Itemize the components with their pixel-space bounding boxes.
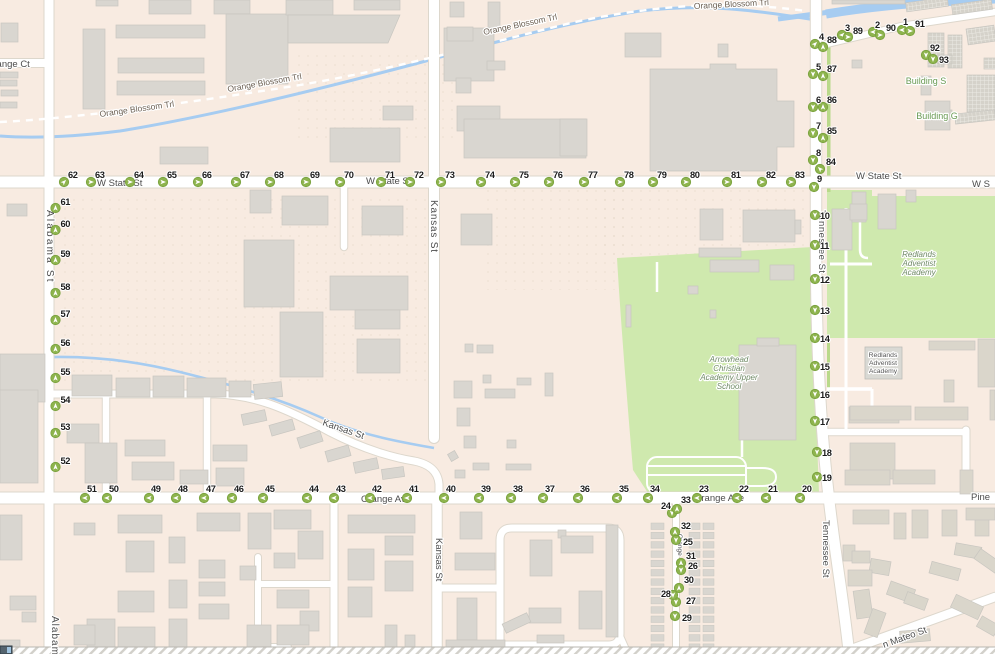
svg-text:W State St: W State St (856, 171, 902, 182)
svg-text:3: 3 (845, 23, 850, 33)
svg-text:47: 47 (206, 484, 216, 494)
svg-text:Building S: Building S (906, 76, 947, 86)
svg-text:17: 17 (820, 417, 830, 427)
svg-text:43: 43 (336, 484, 346, 494)
svg-text:7: 7 (816, 121, 821, 131)
svg-text:72: 72 (414, 170, 424, 180)
svg-text:37: 37 (545, 484, 555, 494)
svg-text:26: 26 (688, 561, 698, 571)
svg-text:83: 83 (795, 170, 805, 180)
svg-text:29: 29 (682, 613, 692, 623)
svg-text:Kansas St: Kansas St (428, 200, 439, 253)
svg-text:44: 44 (309, 484, 320, 494)
svg-text:56: 56 (61, 338, 71, 348)
svg-text:18: 18 (822, 448, 832, 458)
svg-text:87: 87 (827, 64, 837, 74)
svg-text:89: 89 (853, 26, 863, 36)
svg-text:Kansas St: Kansas St (433, 538, 444, 582)
svg-text:73: 73 (445, 170, 455, 180)
svg-text:76: 76 (553, 170, 563, 180)
svg-text:53: 53 (61, 422, 71, 432)
svg-text:85: 85 (827, 126, 837, 136)
svg-text:93: 93 (939, 55, 949, 65)
svg-text:77: 77 (588, 170, 598, 180)
svg-text:36: 36 (580, 484, 590, 494)
svg-text:41: 41 (409, 484, 419, 494)
svg-text:40: 40 (446, 484, 456, 494)
svg-text:22: 22 (739, 484, 749, 494)
svg-text:Orange Ct: Orange Ct (0, 59, 30, 70)
svg-text:62: 62 (68, 170, 78, 180)
svg-text:81: 81 (731, 170, 741, 180)
svg-text:75: 75 (519, 170, 529, 180)
svg-text:10: 10 (820, 211, 830, 221)
svg-text:86: 86 (827, 95, 837, 105)
svg-text:51: 51 (87, 484, 97, 494)
svg-text:30: 30 (684, 575, 694, 585)
svg-text:38: 38 (513, 484, 523, 494)
svg-text:Redlands: Redlands (902, 250, 936, 259)
svg-text:58: 58 (61, 282, 71, 292)
svg-text:28: 28 (661, 589, 671, 599)
svg-text:12: 12 (820, 275, 830, 285)
svg-text:48: 48 (178, 484, 188, 494)
svg-text:45: 45 (265, 484, 275, 494)
svg-text:5: 5 (816, 62, 821, 72)
svg-text:54: 54 (61, 395, 72, 405)
svg-text:Alabama St: Alabama St (44, 210, 55, 284)
svg-text:21: 21 (768, 484, 778, 494)
svg-text:71: 71 (385, 170, 395, 180)
svg-text:27: 27 (686, 596, 696, 606)
svg-text:35: 35 (619, 484, 629, 494)
svg-text:Adventist: Adventist (869, 360, 897, 367)
svg-text:90: 90 (886, 23, 896, 33)
svg-text:50: 50 (109, 484, 119, 494)
svg-text:31: 31 (686, 551, 696, 561)
svg-text:70: 70 (344, 170, 354, 180)
svg-text:59: 59 (61, 249, 71, 259)
svg-text:55: 55 (61, 367, 71, 377)
svg-text:91: 91 (915, 19, 925, 29)
svg-text:16: 16 (820, 390, 830, 400)
svg-text:Arrowhead: Arrowhead (709, 355, 749, 364)
svg-text:60: 60 (61, 219, 71, 229)
svg-text:Adventist: Adventist (902, 259, 937, 268)
svg-text:82: 82 (766, 170, 776, 180)
svg-text:84: 84 (826, 157, 837, 167)
svg-text:79: 79 (657, 170, 667, 180)
svg-text:63: 63 (95, 170, 105, 180)
svg-text:11: 11 (820, 241, 829, 251)
svg-text:69: 69 (310, 170, 320, 180)
svg-text:23: 23 (699, 484, 709, 494)
svg-text:1: 1 (903, 17, 908, 27)
svg-text:Christian: Christian (713, 364, 745, 373)
svg-text:25: 25 (683, 537, 693, 547)
svg-text:20: 20 (802, 484, 812, 494)
svg-text:65: 65 (167, 170, 177, 180)
svg-text:19: 19 (822, 473, 832, 483)
svg-text:46: 46 (234, 484, 244, 494)
svg-text:68: 68 (274, 170, 284, 180)
svg-text:Redlands: Redlands (869, 352, 898, 359)
svg-text:Academy: Academy (901, 268, 936, 277)
svg-text:52: 52 (61, 456, 71, 466)
svg-text:2: 2 (875, 20, 880, 30)
svg-text:Alabama: Alabama (49, 616, 60, 654)
svg-text:66: 66 (202, 170, 212, 180)
svg-text:14: 14 (820, 334, 831, 344)
svg-text:9: 9 (817, 174, 822, 184)
svg-text:Tennessee St: Tennessee St (820, 520, 831, 578)
svg-text:61: 61 (61, 197, 71, 207)
svg-text:57: 57 (61, 309, 71, 319)
svg-text:Building G: Building G (916, 111, 958, 121)
svg-text:49: 49 (151, 484, 161, 494)
svg-text:78: 78 (624, 170, 634, 180)
svg-text:67: 67 (240, 170, 250, 180)
svg-text:13: 13 (820, 306, 830, 316)
svg-text:34: 34 (650, 484, 661, 494)
svg-text:School: School (717, 382, 742, 391)
svg-text:39: 39 (481, 484, 491, 494)
svg-text:80: 80 (690, 170, 700, 180)
svg-text:33: 33 (681, 495, 691, 505)
svg-text:92: 92 (930, 43, 940, 53)
svg-text:6: 6 (816, 95, 821, 105)
svg-text:74: 74 (485, 170, 496, 180)
svg-text:W S: W S (972, 179, 990, 190)
svg-text:15: 15 (820, 362, 830, 372)
svg-text:88: 88 (827, 35, 837, 45)
svg-text:Academy: Academy (869, 368, 898, 375)
svg-text:8: 8 (816, 148, 821, 158)
svg-text:64: 64 (134, 170, 145, 180)
svg-text:Pine: Pine (971, 492, 990, 503)
svg-text:32: 32 (681, 521, 691, 531)
svg-text:24: 24 (661, 501, 672, 511)
svg-text:42: 42 (372, 484, 382, 494)
svg-text:Academy Upper: Academy Upper (699, 373, 758, 382)
